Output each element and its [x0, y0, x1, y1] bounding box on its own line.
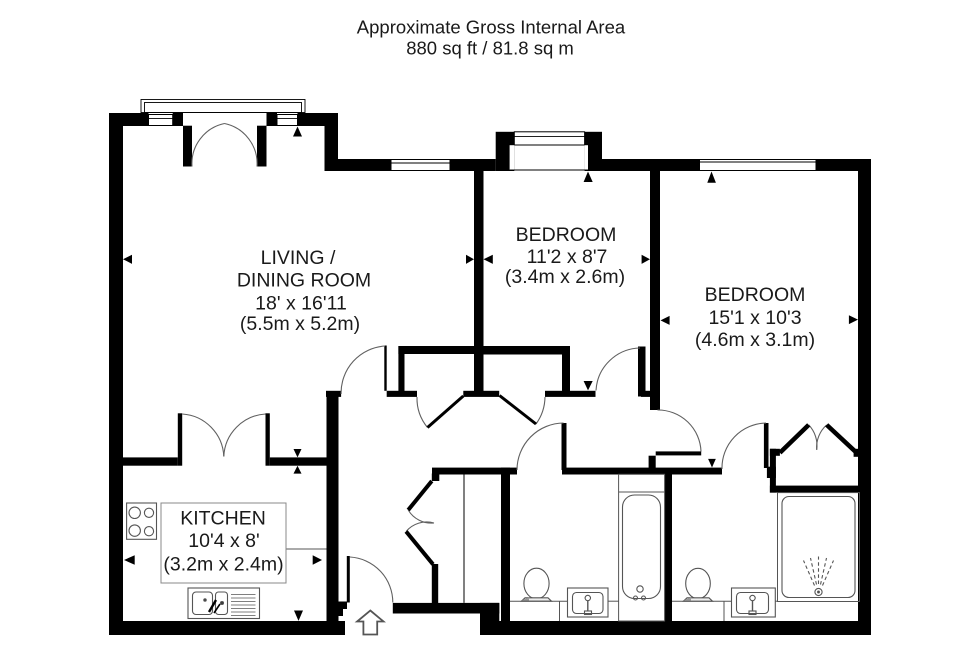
svg-text:880 sq ft / 81.8 sq m: 880 sq ft / 81.8 sq m	[406, 38, 574, 59]
svg-text:(4.6m x 3.1m): (4.6m x 3.1m)	[695, 329, 815, 351]
svg-text:11'2 x 8'7: 11'2 x 8'7	[527, 246, 608, 268]
svg-text:DINING ROOM: DINING ROOM	[237, 270, 371, 292]
svg-text:(3.2m x 2.4m): (3.2m x 2.4m)	[163, 554, 283, 576]
svg-text:BEDROOM: BEDROOM	[705, 284, 806, 306]
svg-text:Approximate Gross Internal Are: Approximate Gross Internal Area	[357, 17, 626, 38]
svg-text:15'1 x 10'3: 15'1 x 10'3	[708, 307, 801, 329]
svg-text:18' x 16'11: 18' x 16'11	[255, 293, 347, 315]
svg-text:(3.4m x 2.6m): (3.4m x 2.6m)	[505, 266, 625, 288]
svg-text:10'4 x 8': 10'4 x 8'	[188, 530, 259, 552]
svg-text:(5.5m x 5.2m): (5.5m x 5.2m)	[240, 313, 360, 335]
svg-text:BEDROOM: BEDROOM	[516, 224, 617, 246]
svg-text:KITCHEN: KITCHEN	[180, 508, 266, 530]
svg-text:LIVING /: LIVING /	[261, 247, 336, 269]
